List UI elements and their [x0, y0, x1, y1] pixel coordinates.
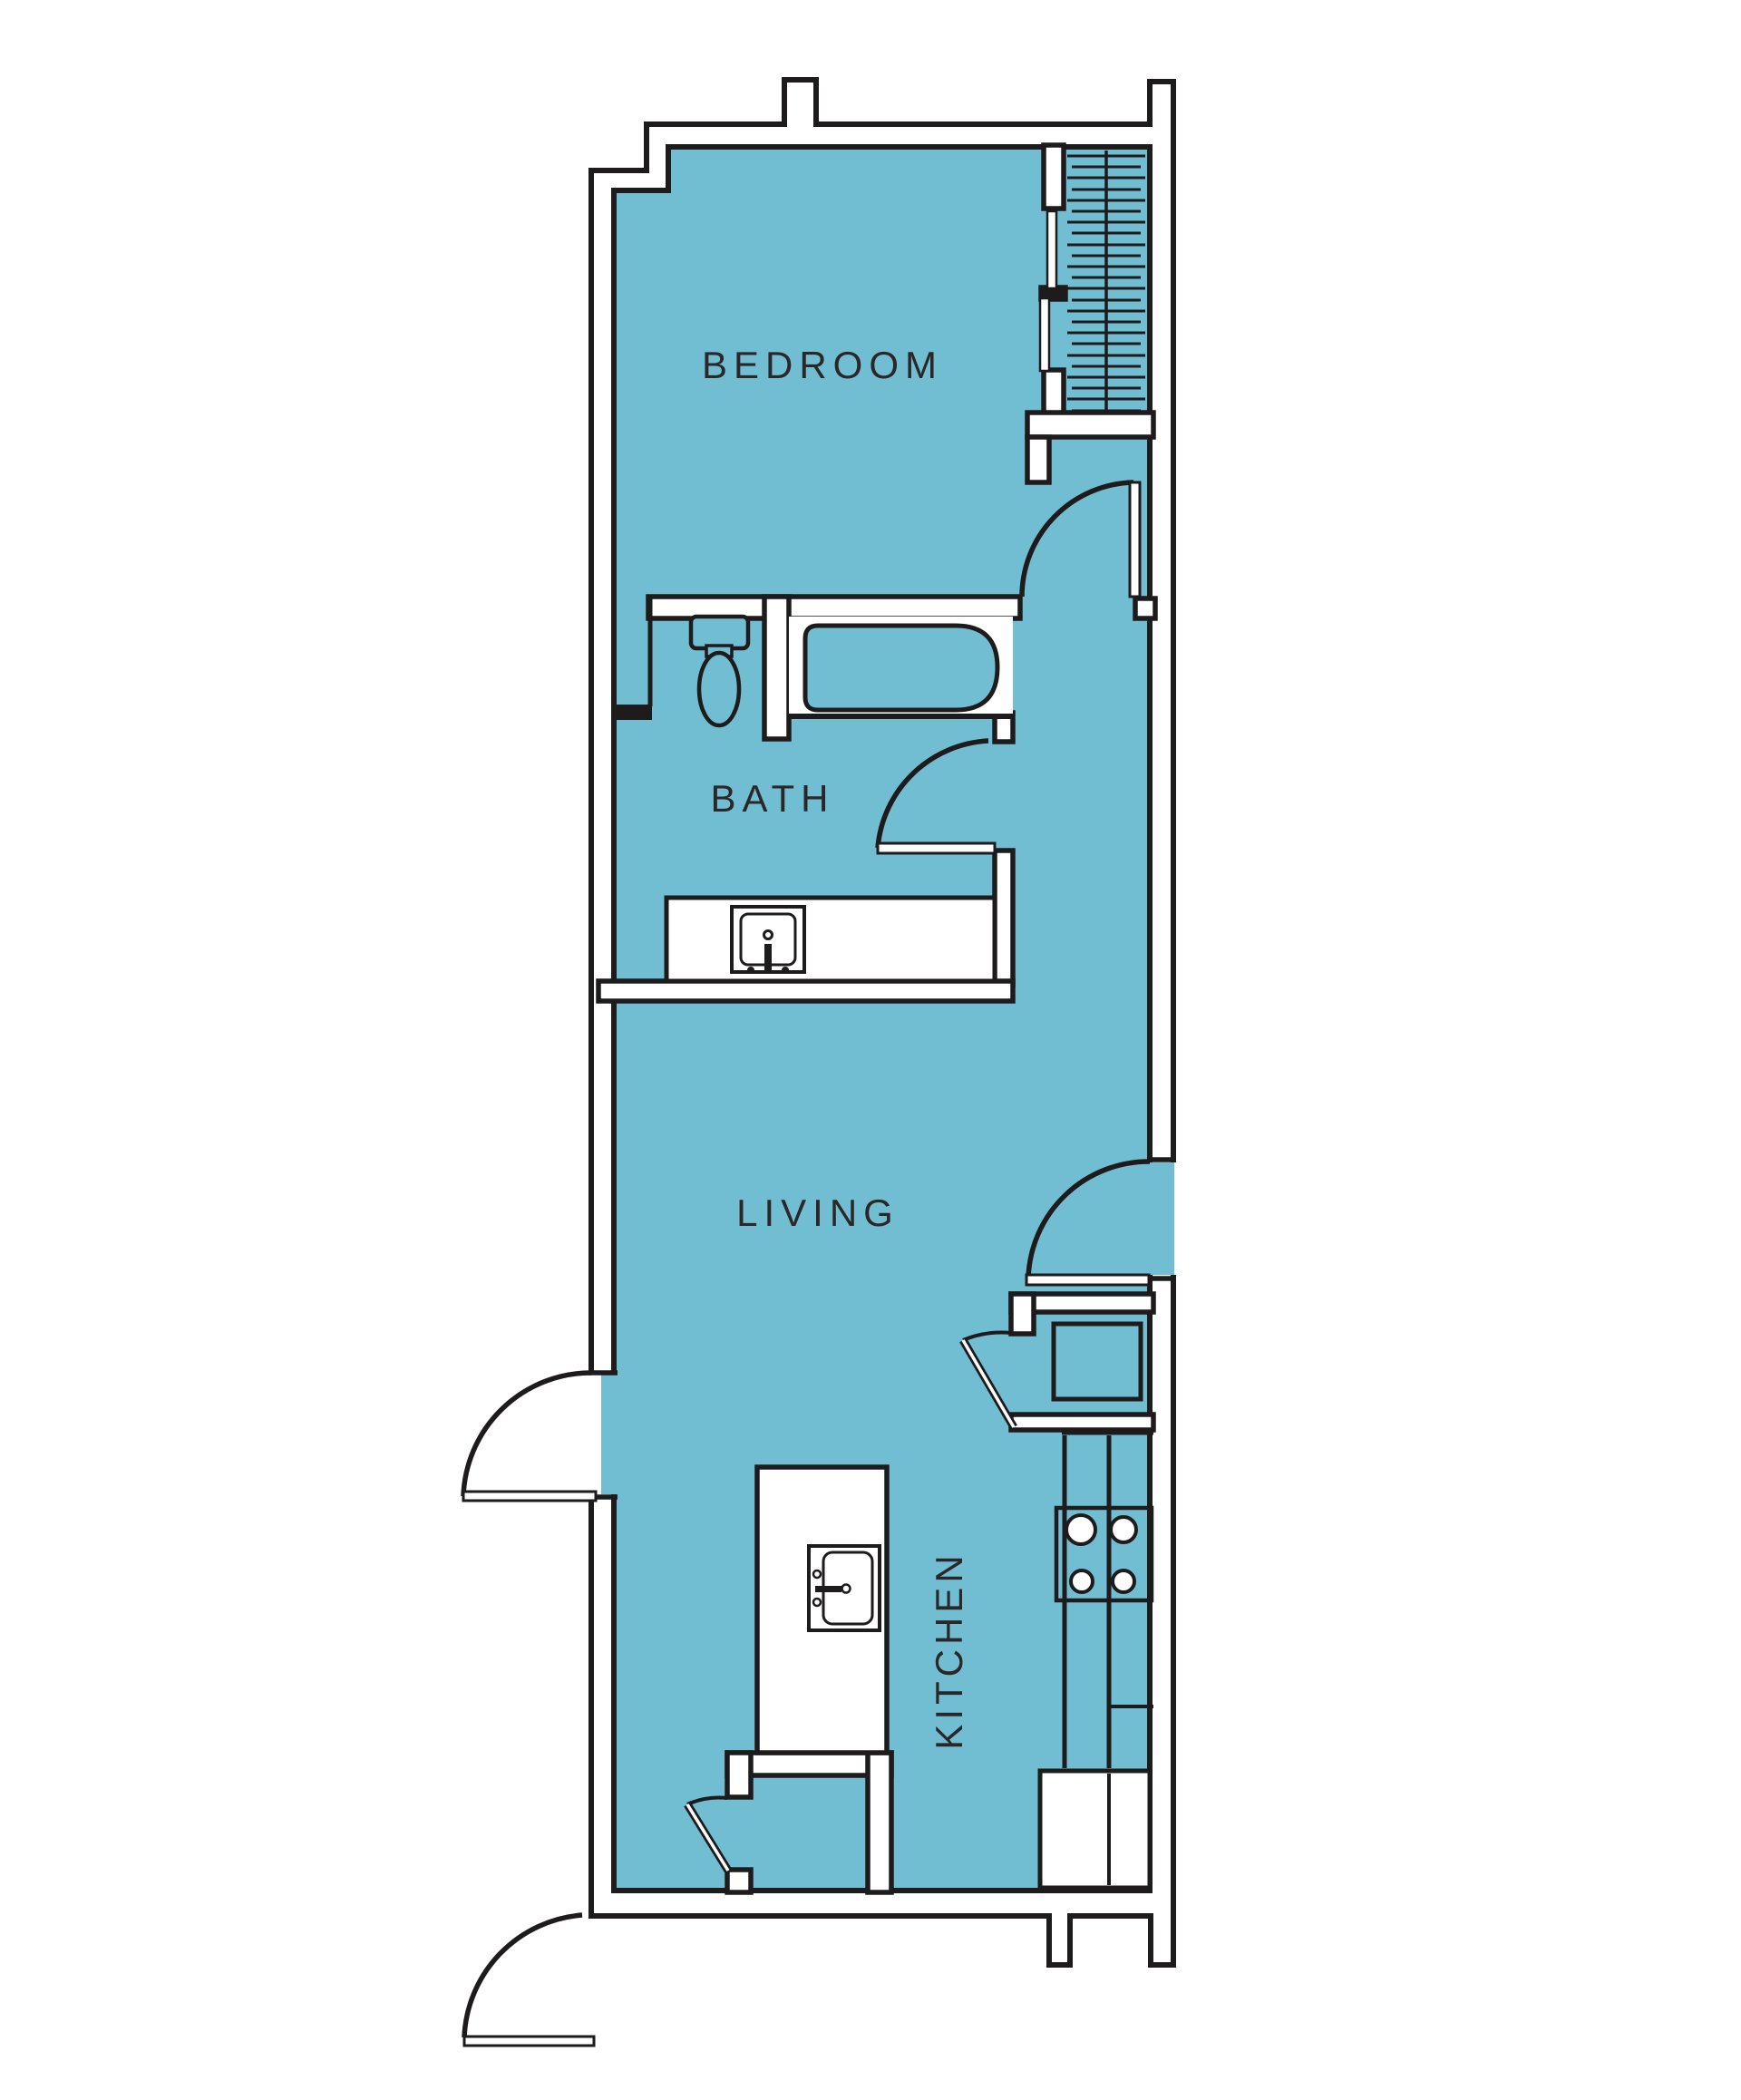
sliding-door-panel-2: [1040, 298, 1049, 371]
bathtub: [805, 626, 997, 710]
alcove-left-stub: [1011, 1294, 1034, 1334]
nook-cap-wall: [612, 705, 652, 720]
bath-bottom-wall: [598, 981, 1013, 1001]
burner: [1113, 1570, 1134, 1592]
island-faucet-dot: [842, 1585, 851, 1593]
burner: [1071, 1570, 1093, 1592]
floor-plan-page: BEDROOM BATH LIVING KITCHEN: [0, 0, 1741, 2100]
opening-floor: [1146, 1162, 1174, 1275]
floor-plan-drawing: BEDROOM BATH LIVING KITCHEN: [0, 0, 1741, 2100]
door-leaf: [463, 1492, 596, 1501]
door-leaf: [1130, 482, 1140, 597]
bath-east-wall-lower: [995, 851, 1013, 985]
refrigerator: [1040, 1771, 1150, 1888]
room-label-bedroom: BEDROOM: [702, 344, 943, 386]
alcove-bottom-wall: [1011, 1415, 1153, 1430]
burner: [1111, 1517, 1136, 1542]
refrigerator-outline: [1040, 1771, 1150, 1888]
island-faucet-bar: [815, 1586, 841, 1592]
vanity-faucet-stem: [764, 944, 772, 974]
left-entry-opening: [588, 1373, 618, 1497]
toilet-separator-wall: [764, 597, 789, 739]
corridor-entry-opening: [1146, 1160, 1177, 1278]
bedroom-door-jamb-stub: [1135, 598, 1155, 618]
kitchen-island: [757, 1467, 887, 1753]
vanity-faucet-dot: [764, 931, 773, 939]
room-label-kitchen: KITCHEN: [928, 1551, 970, 1749]
vanity-handle-right: [782, 967, 789, 974]
left-entry-door: [463, 1373, 596, 1501]
bedroom-right-wall: [1027, 437, 1049, 482]
burner: [1066, 1515, 1095, 1544]
vanity-handle-left: [747, 967, 754, 974]
closet-wall-top-stub: [1044, 145, 1064, 209]
closet-wall-bottom-stub: [1044, 370, 1064, 415]
room-label-living: LIVING: [736, 1191, 900, 1234]
pantry-door-stub-bottom: [727, 1870, 751, 1892]
door-leaf: [464, 2037, 594, 2046]
washer-dryer-unit: [1054, 1324, 1141, 1399]
island-handle-top: [813, 1570, 821, 1578]
door-swing-arc: [463, 1373, 591, 1496]
sliding-door-panel-1: [1047, 211, 1056, 288]
toilet-tank: [691, 617, 748, 648]
pantry-right-wall: [868, 1753, 891, 1892]
door-leaf: [878, 843, 995, 853]
vanity-counter: [666, 898, 995, 981]
toilet-bowl: [699, 653, 739, 725]
exterior-bottom-door: [464, 1915, 594, 2046]
closet-bottom-wall: [1027, 413, 1153, 437]
door-leaf: [1026, 1275, 1149, 1285]
pantry-door-stub-top: [727, 1753, 751, 1797]
door-swing-arc: [464, 1915, 582, 2037]
island-handle-bottom: [813, 1599, 821, 1606]
vanity: [666, 898, 995, 981]
opening-floor: [601, 1374, 618, 1494]
room-label-bath: BATH: [711, 777, 835, 820]
